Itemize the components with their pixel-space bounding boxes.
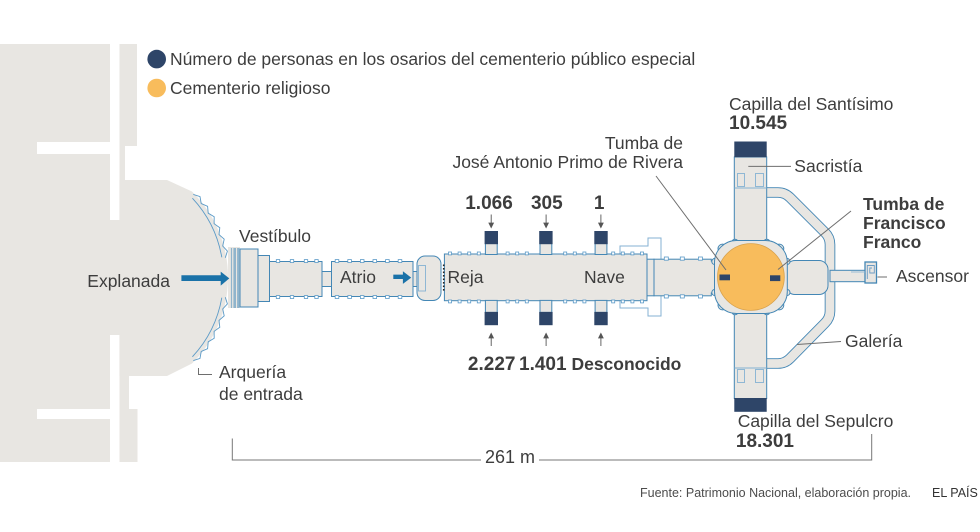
svg-text:José Antonio Primo de Rivera: José Antonio Primo de Rivera [452,152,683,172]
svg-text:de entrada: de entrada [219,384,303,404]
svg-text:Tumba de: Tumba de [605,133,683,153]
svg-text:Ascensor: Ascensor [896,266,969,286]
svg-text:2.227: 2.227 [468,354,516,375]
svg-text:1.066: 1.066 [465,193,513,214]
svg-text:1: 1 [594,193,605,214]
svg-text:Atrio: Atrio [340,267,376,287]
svg-text:Arquería: Arquería [219,362,286,382]
svg-text:1.401: 1.401 [519,354,567,375]
svg-text:Tumba de: Tumba de [863,194,945,214]
svg-text:Capilla del Santísimo: Capilla del Santísimo [729,94,893,114]
svg-text:Cementerio religioso: Cementerio religioso [170,78,331,98]
svg-text:Número de personas en los osar: Número de personas en los osarios del ce… [170,49,695,69]
svg-text:EL PAÍS: EL PAÍS [932,485,978,500]
svg-text:18.301: 18.301 [736,431,795,452]
svg-text:Francisco: Francisco [863,213,946,233]
svg-text:Galería: Galería [845,331,903,351]
svg-text:Desconocido: Desconocido [571,354,681,374]
svg-text:10.545: 10.545 [729,113,788,134]
svg-text:Franco: Franco [863,232,921,252]
svg-text:Fuente: Patrimonio Nacional, e: Fuente: Patrimonio Nacional, elaboración… [640,486,911,500]
svg-text:Nave: Nave [584,267,625,287]
svg-text:305: 305 [531,193,563,214]
svg-text:Reja: Reja [448,267,484,287]
svg-text:261 m: 261 m [485,447,535,467]
svg-text:Capilla del Sepulcro: Capilla del Sepulcro [738,411,894,431]
svg-text:Explanada: Explanada [87,271,170,291]
svg-text:Vestíbulo: Vestíbulo [239,226,311,246]
svg-text:Sacristía: Sacristía [794,156,862,176]
